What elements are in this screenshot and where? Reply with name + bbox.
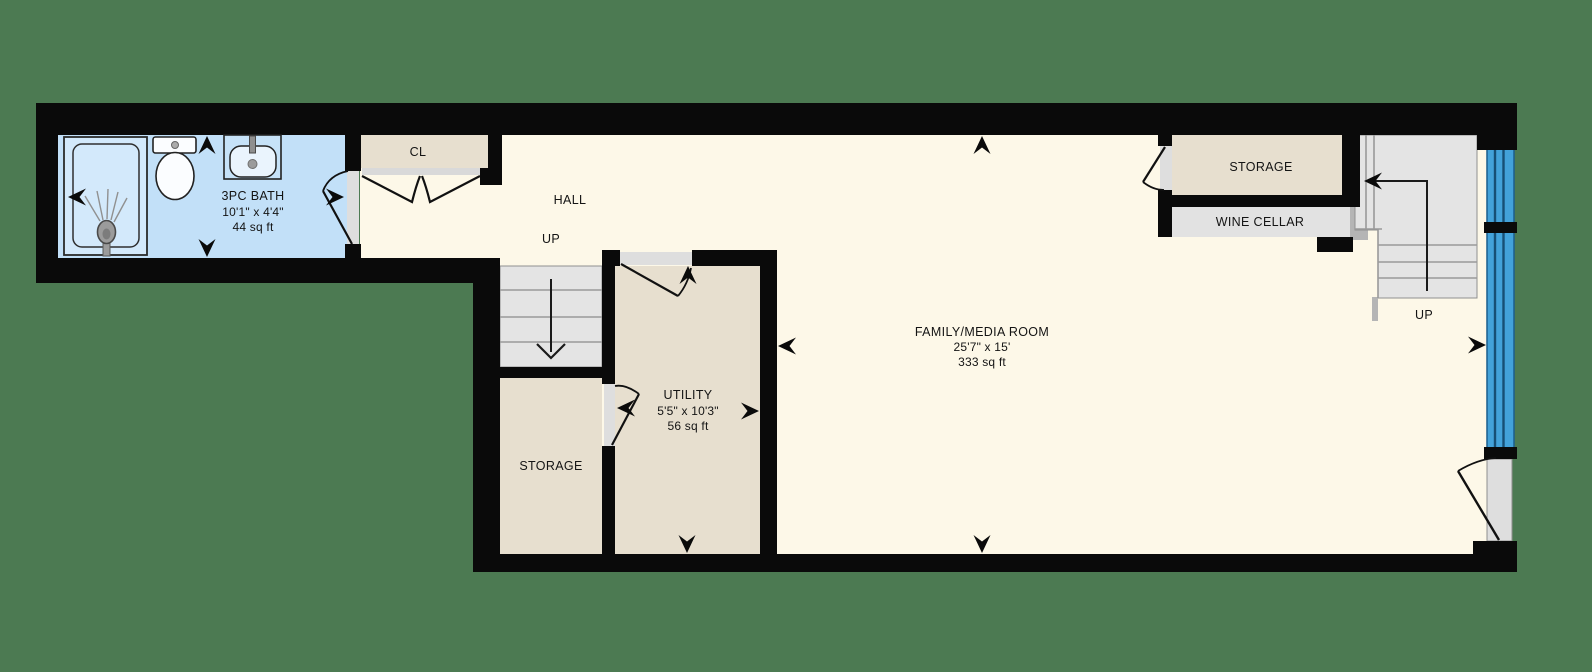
family-room-label: FAMILY/MEDIA ROOM xyxy=(915,326,1049,339)
utility-label: UTILITY xyxy=(664,389,713,402)
rear-door-gap xyxy=(1487,459,1512,541)
wine-cellar-label: WINE CELLAR xyxy=(1216,216,1305,229)
stair-rail-wall xyxy=(1372,297,1378,321)
family-room-area: 333 sq ft xyxy=(958,356,1006,368)
storage-right-label: STORAGE xyxy=(1229,161,1292,174)
bath-door-gap xyxy=(347,171,359,244)
utility-area: 56 sq ft xyxy=(668,420,709,432)
toilet-icon xyxy=(153,137,196,200)
utility-dims: 5'5" x 10'3" xyxy=(657,405,719,417)
floor-plan-drawing xyxy=(0,0,1592,672)
storage-left-label: STORAGE xyxy=(519,460,582,473)
family-room-dims: 25'7" x 15' xyxy=(953,341,1010,353)
closet-track xyxy=(362,168,480,175)
utility-west-door-gap xyxy=(604,384,615,446)
bath-room-area: 44 sq ft xyxy=(233,221,274,233)
closet-label: CL xyxy=(410,146,427,159)
bath-room-label: 3PC BATH xyxy=(222,190,285,203)
hall-up-label: UP xyxy=(542,233,560,246)
floor-plan: 3PC BATH 10'1" x 4'4" 44 sq ft CL HALL U… xyxy=(0,0,1592,672)
utility-top-door-gap xyxy=(620,252,692,265)
sink-icon xyxy=(224,135,281,179)
stairs-up-label: UP xyxy=(1415,309,1433,322)
bath-room-dims: 10'1" x 4'4" xyxy=(222,206,284,218)
window-strip xyxy=(1487,148,1514,448)
hall-label: HALL xyxy=(554,194,587,207)
